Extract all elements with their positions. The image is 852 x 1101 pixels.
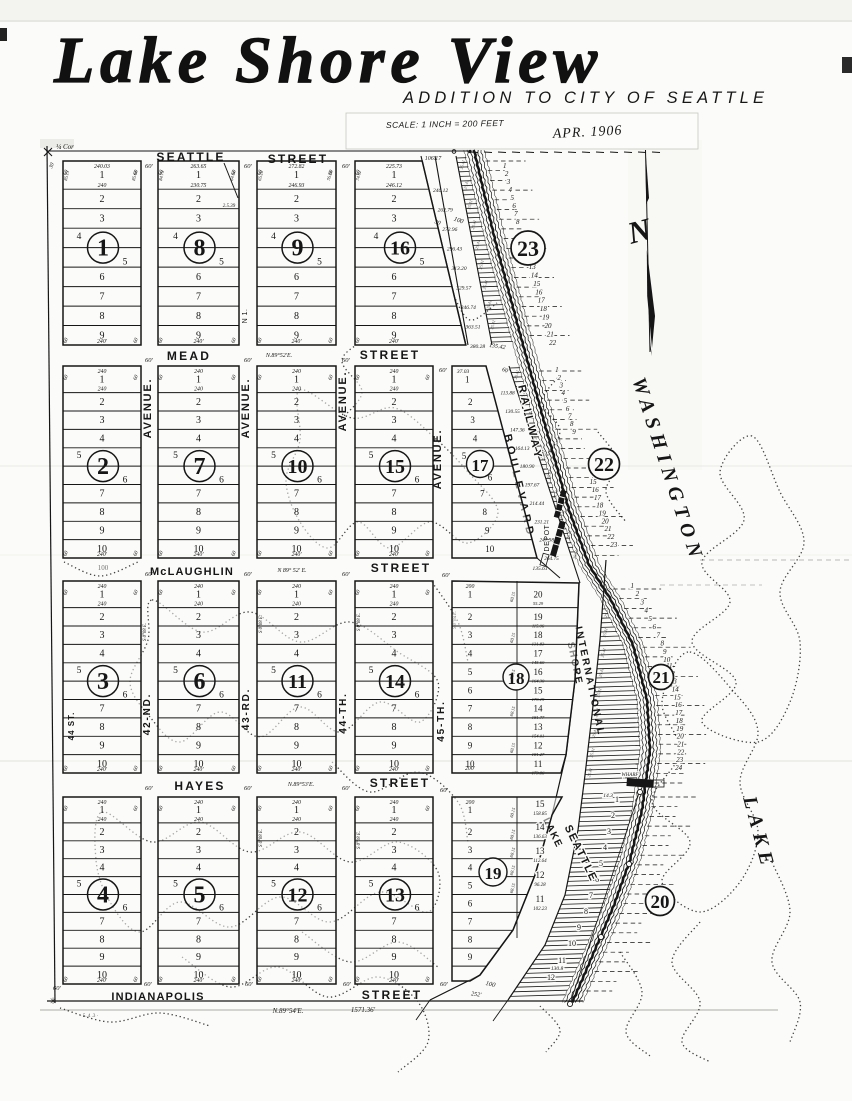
svg-text:7: 7: [100, 916, 105, 927]
svg-text:6: 6: [317, 904, 322, 914]
svg-text:INDIANAPOLIS: INDIANAPOLIS: [111, 991, 204, 1003]
svg-text:240: 240: [292, 601, 301, 608]
svg-text:131.83: 131.83: [532, 642, 545, 647]
svg-text:N.89°54'E.: N.89°54'E.: [272, 1007, 304, 1015]
svg-text:2: 2: [100, 612, 105, 623]
svg-text:ADDITION TO CITY OF SEATT: ADDITION TO CITY OF SEATTLE: [402, 89, 768, 107]
svg-text:44 ST.: 44 ST.: [67, 712, 76, 741]
svg-text:240: 240: [98, 816, 107, 823]
svg-text:STREET: STREET: [360, 348, 421, 362]
svg-text:S 0°08 E.: S 0°08 E.: [143, 623, 148, 641]
svg-text:1: 1: [294, 589, 299, 600]
svg-text:8: 8: [468, 722, 473, 732]
svg-text:8: 8: [516, 218, 520, 226]
svg-text:8: 8: [194, 236, 206, 262]
svg-text:102.23: 102.23: [533, 907, 547, 912]
svg-text:4: 4: [468, 649, 473, 659]
svg-text:5: 5: [77, 451, 82, 461]
svg-text:3: 3: [392, 630, 397, 641]
svg-text:1: 1: [465, 374, 470, 384]
svg-text:4: 4: [392, 434, 397, 445]
svg-text:7: 7: [589, 891, 593, 900]
svg-text:44-TH.: 44-TH.: [338, 692, 349, 733]
svg-text:230.75: 230.75: [191, 183, 207, 189]
svg-text:5: 5: [173, 666, 178, 676]
svg-text:7: 7: [468, 704, 473, 714]
svg-text:1: 1: [100, 374, 105, 385]
svg-text:10: 10: [288, 456, 308, 478]
svg-text:HAYES: HAYES: [174, 779, 225, 793]
svg-text:8: 8: [294, 507, 299, 518]
svg-text:6: 6: [415, 690, 420, 700]
svg-text:3: 3: [100, 415, 105, 426]
svg-text:264.75: 264.75: [544, 556, 559, 562]
svg-text:2: 2: [392, 397, 397, 408]
svg-text:2: 2: [294, 194, 299, 205]
svg-text:14: 14: [531, 271, 539, 279]
svg-text:247.98: 247.98: [539, 538, 554, 544]
svg-text:240: 240: [98, 601, 107, 608]
svg-text:6: 6: [317, 690, 322, 700]
svg-text:N.89°52'E.: N.89°52'E.: [265, 352, 292, 359]
svg-text:S 0°08 E.: S 0°08 E.: [259, 615, 264, 633]
svg-text:8: 8: [100, 311, 105, 322]
svg-text:246.93: 246.93: [289, 182, 305, 189]
svg-text:1: 1: [555, 366, 559, 374]
svg-text:2: 2: [505, 170, 509, 178]
svg-text:240: 240: [98, 182, 107, 189]
svg-text:7: 7: [480, 489, 485, 499]
svg-text:37.03: 37.03: [456, 369, 470, 375]
svg-text:6: 6: [194, 669, 206, 695]
svg-text:19: 19: [599, 510, 607, 518]
svg-text:4: 4: [392, 863, 397, 874]
svg-text:240': 240': [292, 551, 303, 558]
svg-text:246.12: 246.12: [386, 182, 402, 189]
svg-text:60': 60': [244, 785, 253, 792]
svg-text:AVENUE.: AVENUE.: [142, 378, 154, 439]
svg-text:5: 5: [369, 451, 374, 461]
svg-text:7: 7: [294, 916, 299, 927]
svg-text:164.13: 164.13: [515, 446, 530, 452]
svg-text:21: 21: [547, 331, 554, 339]
svg-text:8: 8: [294, 722, 299, 733]
svg-text:STREET: STREET: [371, 561, 432, 575]
svg-text:S 0°08 E.: S 0°08 E.: [357, 831, 362, 849]
svg-text:23: 23: [610, 541, 618, 549]
svg-text:6: 6: [415, 904, 420, 914]
svg-text:9: 9: [100, 740, 105, 751]
svg-text:3: 3: [294, 845, 299, 856]
svg-text:4: 4: [100, 434, 105, 445]
svg-text:12: 12: [534, 740, 543, 750]
svg-text:5: 5: [173, 451, 178, 461]
svg-text:115.06: 115.06: [532, 623, 545, 628]
svg-text:7: 7: [294, 704, 299, 715]
svg-text:AVENUE.: AVENUE.: [337, 371, 349, 432]
svg-text:4: 4: [77, 232, 82, 242]
svg-text:19: 19: [542, 314, 550, 322]
svg-text:3: 3: [639, 598, 644, 606]
svg-text:4: 4: [271, 232, 276, 242]
svg-text:60': 60': [144, 981, 153, 988]
svg-text:8: 8: [100, 722, 105, 733]
svg-text:6: 6: [123, 690, 128, 700]
svg-text:1: 1: [294, 170, 299, 181]
svg-text:9: 9: [292, 236, 304, 262]
svg-text:16: 16: [534, 667, 544, 677]
svg-text:15: 15: [590, 478, 598, 486]
svg-text:7: 7: [100, 291, 105, 302]
svg-text:16: 16: [675, 701, 683, 709]
svg-text:145.60: 145.60: [532, 660, 545, 665]
svg-text:3: 3: [196, 213, 201, 224]
svg-text:240: 240: [292, 816, 301, 823]
svg-text:60': 60': [244, 571, 253, 578]
svg-text:42-ND.: 42-ND.: [142, 693, 153, 735]
svg-text:2: 2: [294, 612, 299, 623]
svg-text:240': 240': [97, 551, 108, 558]
svg-text:15: 15: [385, 456, 405, 478]
svg-text:240': 240': [97, 977, 108, 984]
svg-text:21: 21: [653, 668, 670, 687]
svg-text:1: 1: [468, 589, 473, 599]
svg-text:5: 5: [564, 397, 568, 405]
svg-text:15: 15: [674, 693, 682, 701]
svg-text:4: 4: [100, 649, 105, 660]
svg-text:22: 22: [594, 454, 614, 476]
svg-text:2: 2: [468, 397, 473, 407]
svg-text:5: 5: [194, 883, 206, 909]
svg-text:8: 8: [392, 722, 397, 733]
svg-text:55.29: 55.29: [533, 601, 544, 606]
svg-text:130.55: 130.55: [505, 409, 520, 415]
svg-text:6: 6: [100, 272, 105, 283]
svg-text:20: 20: [534, 589, 544, 599]
svg-text:STREET: STREET: [370, 776, 431, 790]
svg-text:7: 7: [196, 291, 201, 302]
svg-text:4: 4: [196, 434, 201, 445]
svg-text:60': 60': [145, 357, 154, 364]
svg-text:4: 4: [173, 232, 178, 242]
svg-text:240: 240: [98, 368, 107, 375]
svg-text:20: 20: [602, 517, 610, 525]
svg-text:240': 240': [194, 551, 205, 558]
svg-text:18: 18: [676, 717, 684, 725]
svg-text:240': 240': [194, 977, 205, 984]
svg-text:240': 240': [292, 977, 303, 984]
svg-text:4: 4: [196, 863, 201, 874]
svg-text:✳: ✳: [49, 996, 57, 1006]
svg-text:43-RD.: 43-RD.: [241, 688, 252, 730]
svg-text:240': 240': [389, 766, 400, 773]
svg-text:6: 6: [219, 475, 224, 485]
svg-text:3: 3: [468, 845, 473, 855]
svg-text:7: 7: [294, 489, 299, 500]
svg-text:3: 3: [294, 630, 299, 641]
svg-text:4: 4: [392, 649, 397, 660]
svg-text:SCALE: 1 INCH = 200 FEET: SCALE: 1 INCH = 200 FEET: [386, 118, 505, 130]
svg-text:5: 5: [510, 194, 514, 202]
svg-text:200: 200: [466, 584, 475, 590]
svg-text:240': 240': [97, 338, 108, 345]
svg-text:5: 5: [271, 880, 276, 890]
svg-text:2: 2: [97, 454, 109, 480]
svg-text:240: 240: [390, 368, 399, 375]
svg-text:2: 2: [468, 827, 473, 837]
svg-text:4: 4: [294, 863, 299, 874]
svg-text:WHARF: WHARF: [622, 773, 640, 778]
svg-text:9: 9: [196, 525, 201, 536]
svg-text:106.17: 106.17: [425, 156, 443, 162]
svg-text:7: 7: [392, 704, 397, 715]
svg-text:2: 2: [196, 194, 201, 205]
svg-text:7: 7: [194, 454, 206, 480]
svg-text:5: 5: [420, 257, 425, 267]
svg-text:S 0°08 E.: S 0°08 E.: [357, 613, 362, 631]
svg-text:2: 2: [196, 612, 201, 623]
svg-text:7: 7: [100, 704, 105, 715]
svg-text:McLAUGHLIN: McLAUGHLIN: [150, 566, 234, 578]
svg-text:3: 3: [100, 213, 105, 224]
svg-text:18: 18: [596, 502, 604, 510]
svg-text:1: 1: [196, 589, 201, 600]
svg-text:19: 19: [676, 725, 684, 733]
svg-text:200: 200: [466, 800, 475, 806]
svg-text:240: 240: [390, 601, 399, 608]
svg-text:9: 9: [392, 952, 397, 963]
svg-text:240.03: 240.03: [94, 163, 110, 170]
svg-text:4: 4: [509, 186, 513, 194]
svg-text:2: 2: [294, 397, 299, 408]
svg-text:3: 3: [468, 630, 473, 640]
svg-text:60': 60': [440, 787, 449, 794]
svg-text:3: 3: [506, 178, 511, 186]
svg-text:16: 16: [390, 238, 410, 260]
svg-text:3: 3: [100, 845, 105, 856]
svg-text:14: 14: [385, 671, 405, 693]
svg-text:8: 8: [468, 934, 473, 944]
svg-text:60': 60': [245, 981, 254, 988]
svg-text:6: 6: [468, 899, 473, 909]
svg-text:200': 200': [465, 766, 476, 772]
svg-text:12: 12: [536, 870, 545, 880]
svg-text:60': 60': [145, 163, 154, 170]
svg-text:4: 4: [294, 649, 299, 660]
svg-text:240': 240': [194, 338, 205, 345]
svg-text:2: 2: [392, 612, 397, 623]
svg-text:240': 240': [292, 766, 303, 773]
svg-text:60': 60': [342, 785, 351, 792]
svg-text:7: 7: [468, 916, 473, 926]
svg-text:7: 7: [392, 489, 397, 500]
svg-text:9: 9: [468, 952, 473, 962]
svg-text:60': 60': [440, 981, 449, 988]
svg-text:240': 240': [389, 338, 400, 345]
svg-text:9: 9: [468, 740, 473, 750]
svg-text:5: 5: [599, 859, 603, 868]
svg-text:2: 2: [636, 590, 640, 598]
svg-text:181.27: 181.27: [532, 752, 545, 757]
svg-text:9: 9: [392, 740, 397, 751]
svg-text:13: 13: [536, 846, 546, 856]
svg-text:6: 6: [468, 685, 473, 695]
svg-text:7: 7: [196, 489, 201, 500]
svg-text:4: 4: [97, 883, 109, 909]
svg-text:60': 60': [442, 572, 451, 579]
svg-text:5: 5: [77, 880, 82, 890]
svg-text:7: 7: [657, 631, 661, 639]
svg-text:N 1.: N 1.: [242, 309, 249, 324]
svg-text:96.28: 96.28: [534, 883, 546, 888]
svg-text:3: 3: [607, 827, 611, 836]
svg-text:363.51: 363.51: [464, 325, 480, 331]
svg-text:11: 11: [536, 894, 545, 904]
svg-text:154.01: 154.01: [532, 734, 545, 739]
svg-text:23: 23: [517, 236, 539, 261]
svg-text:240': 240': [389, 977, 400, 984]
svg-text:240: 240: [194, 386, 203, 393]
svg-text:11: 11: [534, 759, 543, 769]
svg-text:1: 1: [196, 805, 201, 816]
svg-text:3: 3: [392, 213, 397, 224]
svg-text:12: 12: [547, 973, 555, 982]
svg-text:MEAD: MEAD: [167, 349, 211, 363]
svg-text:1: 1: [100, 170, 105, 181]
svg-text:SEATTLE: SEATTLE: [156, 150, 225, 164]
svg-text:8: 8: [196, 722, 201, 733]
svg-text:240: 240: [194, 368, 203, 375]
svg-text:23: 23: [676, 756, 684, 764]
svg-text:20: 20: [651, 892, 670, 913]
svg-text:21: 21: [605, 525, 612, 533]
svg-text:7: 7: [196, 704, 201, 715]
svg-text:5: 5: [173, 880, 178, 890]
svg-text:147.36: 147.36: [510, 427, 525, 433]
svg-text:1: 1: [294, 805, 299, 816]
svg-text:8: 8: [392, 311, 397, 322]
svg-text:9: 9: [485, 525, 490, 535]
svg-text:1: 1: [468, 805, 473, 815]
svg-text:60': 60': [342, 357, 351, 364]
svg-text:6: 6: [123, 904, 128, 914]
svg-text:STREET: STREET: [362, 988, 423, 1002]
svg-text:3: 3: [294, 213, 299, 224]
svg-text:1: 1: [392, 589, 397, 600]
svg-text:6: 6: [219, 690, 224, 700]
svg-text:24: 24: [675, 764, 683, 772]
svg-text:6: 6: [392, 272, 397, 283]
svg-text:2: 2: [100, 194, 105, 205]
svg-text:¼ Cor: ¼ Cor: [56, 143, 74, 151]
svg-text:1: 1: [97, 236, 109, 262]
svg-text:380.28: 380.28: [469, 344, 485, 350]
svg-text:112.64: 112.64: [533, 859, 547, 864]
svg-text:6: 6: [415, 475, 420, 485]
svg-text:100: 100: [98, 564, 109, 572]
svg-text:14: 14: [534, 704, 544, 714]
svg-text:231.21: 231.21: [535, 519, 550, 525]
svg-text:240: 240: [292, 799, 301, 806]
svg-text:8: 8: [294, 311, 299, 322]
svg-text:10: 10: [568, 939, 576, 948]
svg-text:9: 9: [100, 952, 105, 963]
svg-text:313.20: 313.20: [450, 266, 466, 272]
svg-text:240: 240: [98, 799, 107, 806]
svg-text:6: 6: [294, 272, 299, 283]
svg-text:60': 60': [244, 357, 253, 364]
svg-text:296.43: 296.43: [447, 246, 462, 253]
svg-text:1: 1: [392, 805, 397, 816]
svg-text:240': 240': [389, 551, 400, 558]
svg-text:13: 13: [534, 722, 544, 732]
svg-text:240: 240: [194, 583, 203, 590]
svg-text:9: 9: [196, 952, 201, 963]
svg-text:4: 4: [603, 843, 607, 852]
svg-text:20: 20: [677, 733, 685, 741]
svg-text:14: 14: [536, 822, 546, 832]
svg-text:17: 17: [538, 297, 546, 305]
svg-text:AVENUE.: AVENUE.: [432, 429, 444, 490]
svg-text:6: 6: [123, 475, 128, 485]
svg-text:240: 240: [194, 799, 203, 806]
svg-text:240: 240: [292, 386, 301, 393]
svg-text:60': 60': [342, 163, 351, 170]
svg-text:3: 3: [97, 669, 109, 695]
svg-text:8: 8: [661, 640, 665, 648]
svg-text:2.5.39: 2.5.39: [223, 204, 236, 209]
svg-text:13: 13: [385, 885, 405, 907]
svg-text:3: 3: [100, 630, 105, 641]
svg-text:7: 7: [196, 916, 201, 927]
svg-text:· 5. 4 .3 ·: · 5. 4 .3 ·: [80, 1014, 99, 1019]
svg-text:1: 1: [630, 582, 634, 590]
svg-text:9: 9: [294, 952, 299, 963]
svg-text:7: 7: [392, 291, 397, 302]
svg-text:130.8: 130.8: [551, 966, 564, 972]
svg-text:1: 1: [100, 805, 105, 816]
svg-text:7: 7: [514, 210, 518, 218]
svg-text:STREET: STREET: [268, 152, 329, 166]
svg-text:263.65: 263.65: [191, 164, 207, 170]
svg-text:136.63: 136.63: [533, 835, 547, 840]
svg-text:2: 2: [196, 827, 201, 838]
svg-text:9: 9: [572, 428, 576, 436]
svg-text:240: 240: [98, 386, 107, 393]
svg-text:60': 60': [439, 367, 448, 374]
svg-text:5: 5: [468, 881, 473, 891]
svg-text:2: 2: [196, 397, 201, 408]
svg-text:3: 3: [196, 845, 201, 856]
svg-text:4: 4: [196, 649, 201, 660]
svg-text:12: 12: [288, 885, 308, 907]
svg-text:22: 22: [549, 339, 557, 347]
svg-text:4: 4: [644, 607, 648, 615]
svg-text:60': 60': [342, 571, 351, 578]
svg-text:113.88: 113.88: [501, 391, 516, 397]
svg-text:9: 9: [663, 648, 667, 656]
svg-text:10: 10: [485, 544, 495, 554]
svg-text:5: 5: [462, 451, 467, 461]
svg-text:S 0°08 E.: S 0°08 E.: [259, 829, 264, 847]
svg-text:240: 240: [292, 583, 301, 590]
svg-text:5: 5: [317, 257, 322, 267]
svg-text:N 89° 52' E.: N 89° 52' E.: [276, 567, 306, 574]
svg-text:8: 8: [196, 507, 201, 518]
svg-text:9: 9: [392, 525, 397, 536]
svg-text:173.19: 173.19: [532, 697, 545, 702]
svg-text:181.77: 181.77: [532, 715, 545, 720]
